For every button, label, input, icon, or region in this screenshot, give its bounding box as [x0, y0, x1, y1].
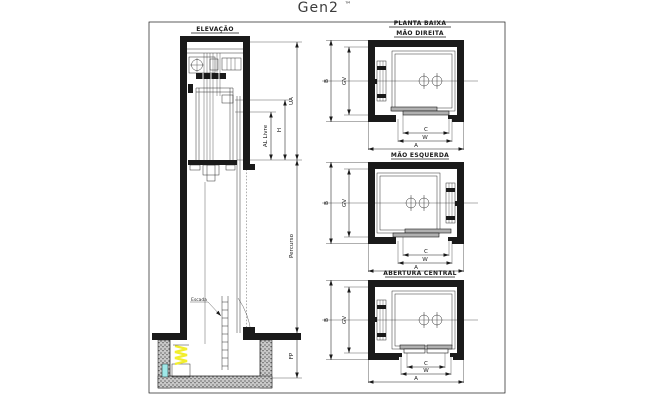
dim-b-label: B	[324, 201, 330, 205]
pit: Escada	[158, 296, 272, 388]
plan3-door-panel	[400, 345, 425, 349]
plans-section-label: PLANTA BAIXA	[394, 20, 447, 27]
dim-w-label: W	[423, 368, 429, 374]
dim-w-label: W	[422, 135, 428, 141]
door-operator	[222, 95, 233, 103]
dim-c-label: C	[424, 127, 428, 133]
dim-w-label: W	[422, 257, 428, 263]
buffer-pad	[162, 364, 168, 377]
machine-assembly	[187, 49, 243, 103]
plan-view-center-opening: ABERTURA CENTRAL	[322, 270, 478, 383]
plan1-label: MÃO DIREITA	[396, 30, 444, 37]
plan3-label: ABERTURA CENTRAL	[383, 270, 457, 277]
plan1-door-opening	[396, 115, 452, 122]
plan1-door-panel	[391, 107, 437, 111]
plan3-door-panel	[427, 345, 452, 349]
dim-b-label: B	[324, 79, 330, 83]
dim-fp-label: FP	[289, 352, 295, 359]
machine-motor	[222, 58, 241, 70]
pit-floor	[158, 376, 272, 388]
dim-gv-label: GV	[342, 77, 348, 85]
cab-platform	[188, 160, 237, 165]
plan2-door-panel	[405, 229, 451, 233]
floor-slab-right	[243, 333, 301, 340]
buffer-spring	[175, 346, 187, 364]
elevation-view: ELEVAÇÃO	[152, 26, 302, 388]
plan-view-right-hand: PLANTA BAIXA MÃO DIREITA	[322, 20, 478, 150]
dim-b-label: B	[324, 318, 330, 322]
plan2-door-panel	[393, 233, 439, 237]
door-header-block	[243, 164, 255, 170]
plan2-label: MÃO ESQUERDA	[391, 152, 449, 159]
dim-h-label: H	[277, 128, 283, 132]
dim-c-label: C	[424, 249, 428, 255]
elevation-label: ELEVAÇÃO	[196, 26, 233, 33]
plan1-door-panel	[403, 111, 449, 115]
dim-a-label: A	[414, 143, 418, 149]
plan-view-left-hand: MÃO ESQUERDA	[322, 152, 478, 272]
dim-al-livre-label: AL Livre	[263, 124, 269, 147]
suspension-belts	[204, 53, 220, 160]
drawing-sheet: Gen2 ™ ELEVAÇÃO	[0, 0, 650, 400]
pit-ladder	[222, 296, 228, 370]
dim-c-label: C	[424, 361, 428, 367]
ladder-leader-line	[208, 302, 221, 316]
elevator-cab	[188, 88, 237, 181]
floor-slab-left	[152, 333, 180, 340]
shaft-top-wall	[180, 36, 250, 42]
plan2-door-opening	[396, 237, 452, 244]
sill-block	[243, 327, 255, 333]
dim-gv-label: GV	[342, 199, 348, 207]
dim-a-label: A	[414, 376, 418, 382]
safety-gear	[207, 165, 215, 181]
rail-bracket	[188, 84, 193, 93]
dim-ua-label: UA	[289, 97, 295, 105]
cad-drawing: ELEVAÇÃO	[0, 0, 650, 400]
buffer-base	[172, 364, 190, 377]
dim-gv-label: GV	[342, 316, 348, 324]
shaft-left-wall	[180, 36, 187, 340]
dim-percurso-label: Percurso	[289, 233, 295, 258]
